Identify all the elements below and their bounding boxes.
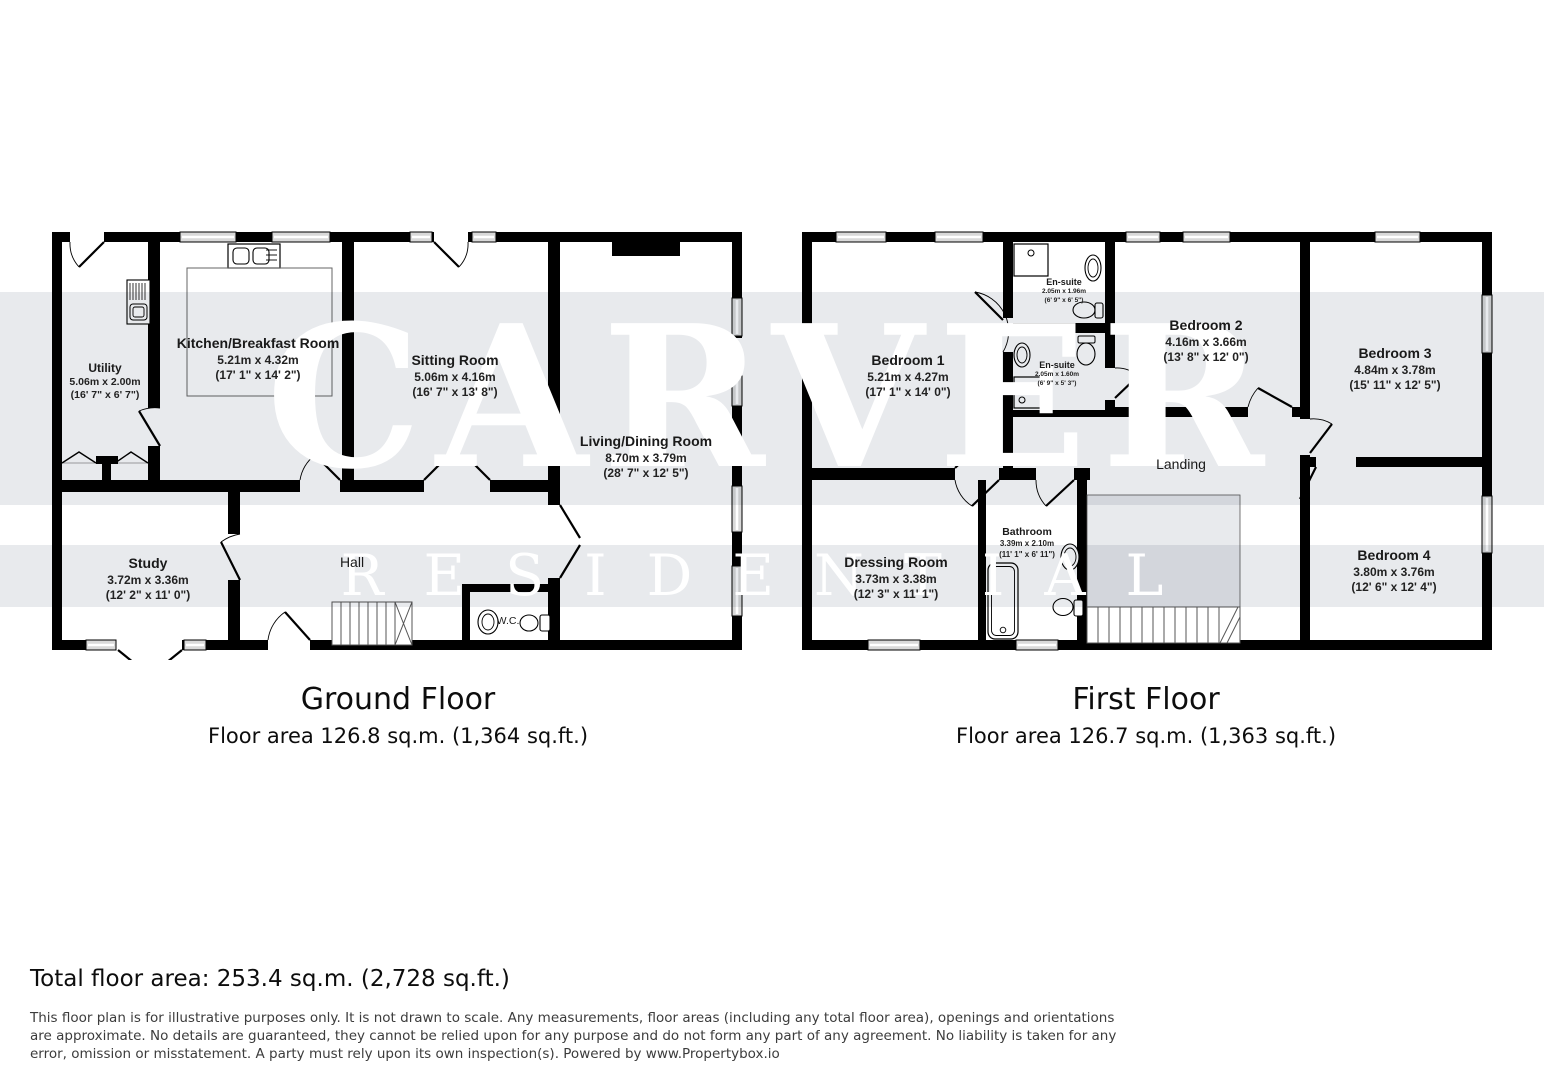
room-label-hall: Hall (340, 554, 364, 572)
room-label-dressing-room: Dressing Room 3.73m x 3.38m (12' 3" x 11… (844, 554, 947, 602)
room-label-utility: Utility 5.06m x 2.00m (16' 7" x 6' 7") (69, 361, 140, 402)
room-label-living-dining: Living/Dining Room 8.70m x 3.79m (28' 7"… (580, 433, 712, 481)
room-label-bathroom: Bathroom 3.39m x 2.10m (11' 1" x 6' 11") (999, 526, 1055, 560)
room-label-study: Study 3.72m x 3.36m (12' 2" x 11' 0") (106, 555, 190, 603)
room-label-wc: W.C. (497, 615, 520, 628)
room-label-bedroom-2: Bedroom 2 4.16m x 3.66m (13' 8" x 12' 0"… (1163, 317, 1248, 365)
room-label-bedroom-1: Bedroom 1 5.21m x 4.27m (17' 1" x 14' 0"… (865, 352, 950, 400)
room-label-bedroom-3: Bedroom 3 4.84m x 3.78m (15' 11" x 12' 5… (1349, 345, 1440, 393)
total-floor-area: Total floor area: 253.4 sq.m. (2,728 sq.… (30, 966, 510, 992)
room-label-ensuite-2: En-suite 2.05m x 1.60m (6' 9" x 5' 3") (1035, 360, 1079, 389)
room-label-landing: Landing (1156, 456, 1206, 474)
room-label-kitchen: Kitchen/Breakfast Room 5.21m x 4.32m (17… (177, 335, 340, 383)
room-label-sitting-room: Sitting Room 5.06m x 4.16m (16' 7" x 13'… (411, 352, 498, 400)
ground-floor-title: Ground Floor (301, 682, 496, 717)
room-label-bedroom-4: Bedroom 4 3.80m x 3.76m (12' 6" x 12' 4"… (1351, 547, 1436, 595)
first-floor-title: First Floor (1072, 682, 1219, 717)
disclaimer-text: This floor plan is for illustrative purp… (30, 1010, 1130, 1063)
room-label-ensuite-1: En-suite 2.05m x 1.96m (6' 9" x 6' 5") (1042, 277, 1086, 306)
first-floor-area: Floor area 126.7 sq.m. (1,363 sq.ft.) (956, 724, 1336, 748)
ground-floor-area: Floor area 126.8 sq.m. (1,364 sq.ft.) (208, 724, 588, 748)
floorplan-page: { "watermark": { "line1": "CARVER", "lin… (0, 0, 1544, 1080)
